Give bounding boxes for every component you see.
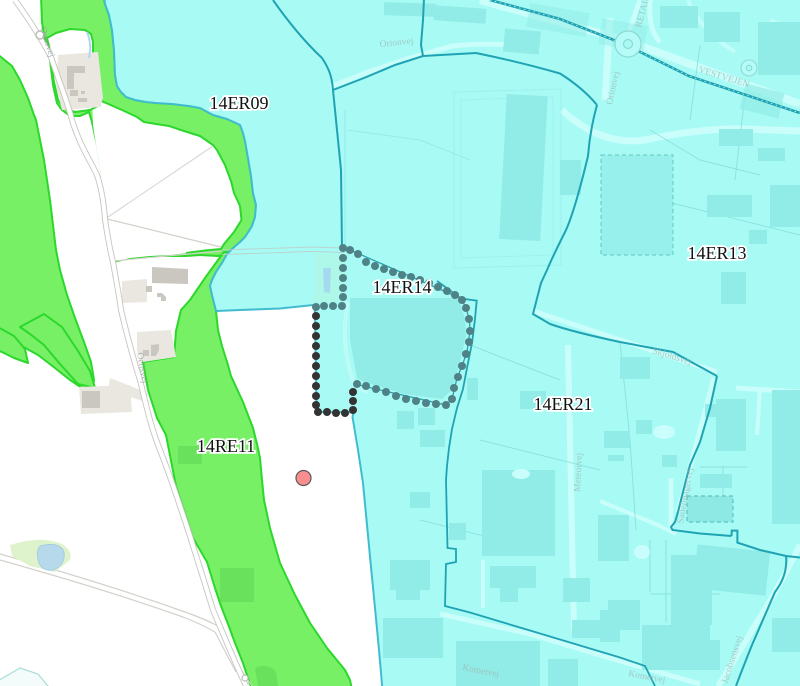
svg-text:14ER13: 14ER13 [687,243,746,263]
svg-text:Meteorvej: Meteorvej [573,453,585,493]
svg-text:14RE11: 14RE11 [197,436,255,456]
svg-text:14ER09: 14ER09 [209,93,268,113]
svg-text:14ER21: 14ER21 [533,394,592,414]
svg-text:14ER14: 14ER14 [372,277,431,297]
